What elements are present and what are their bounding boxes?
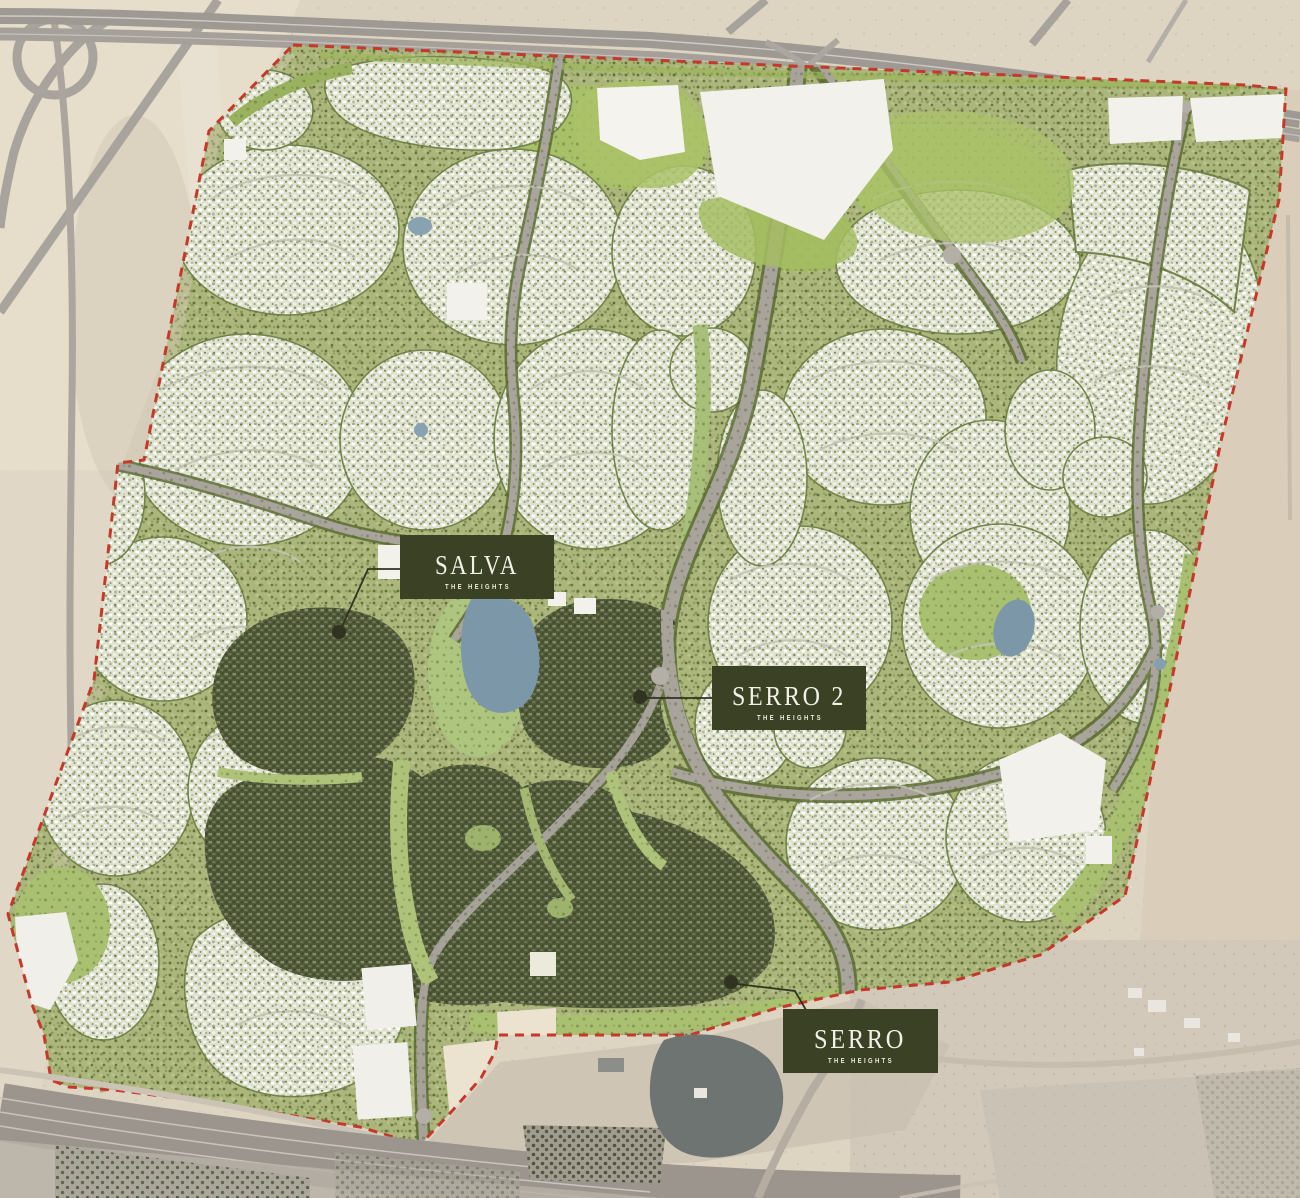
- svg-text:SERRO 2: SERRO 2: [732, 681, 846, 711]
- svg-text:SERRO: SERRO: [814, 1024, 906, 1054]
- svg-text:THE HEIGHTS: THE HEIGHTS: [445, 582, 511, 591]
- svg-text:THE HEIGHTS: THE HEIGHTS: [828, 1056, 894, 1065]
- svg-text:THE HEIGHTS: THE HEIGHTS: [757, 713, 823, 722]
- svg-text:SALVA: SALVA: [435, 550, 519, 580]
